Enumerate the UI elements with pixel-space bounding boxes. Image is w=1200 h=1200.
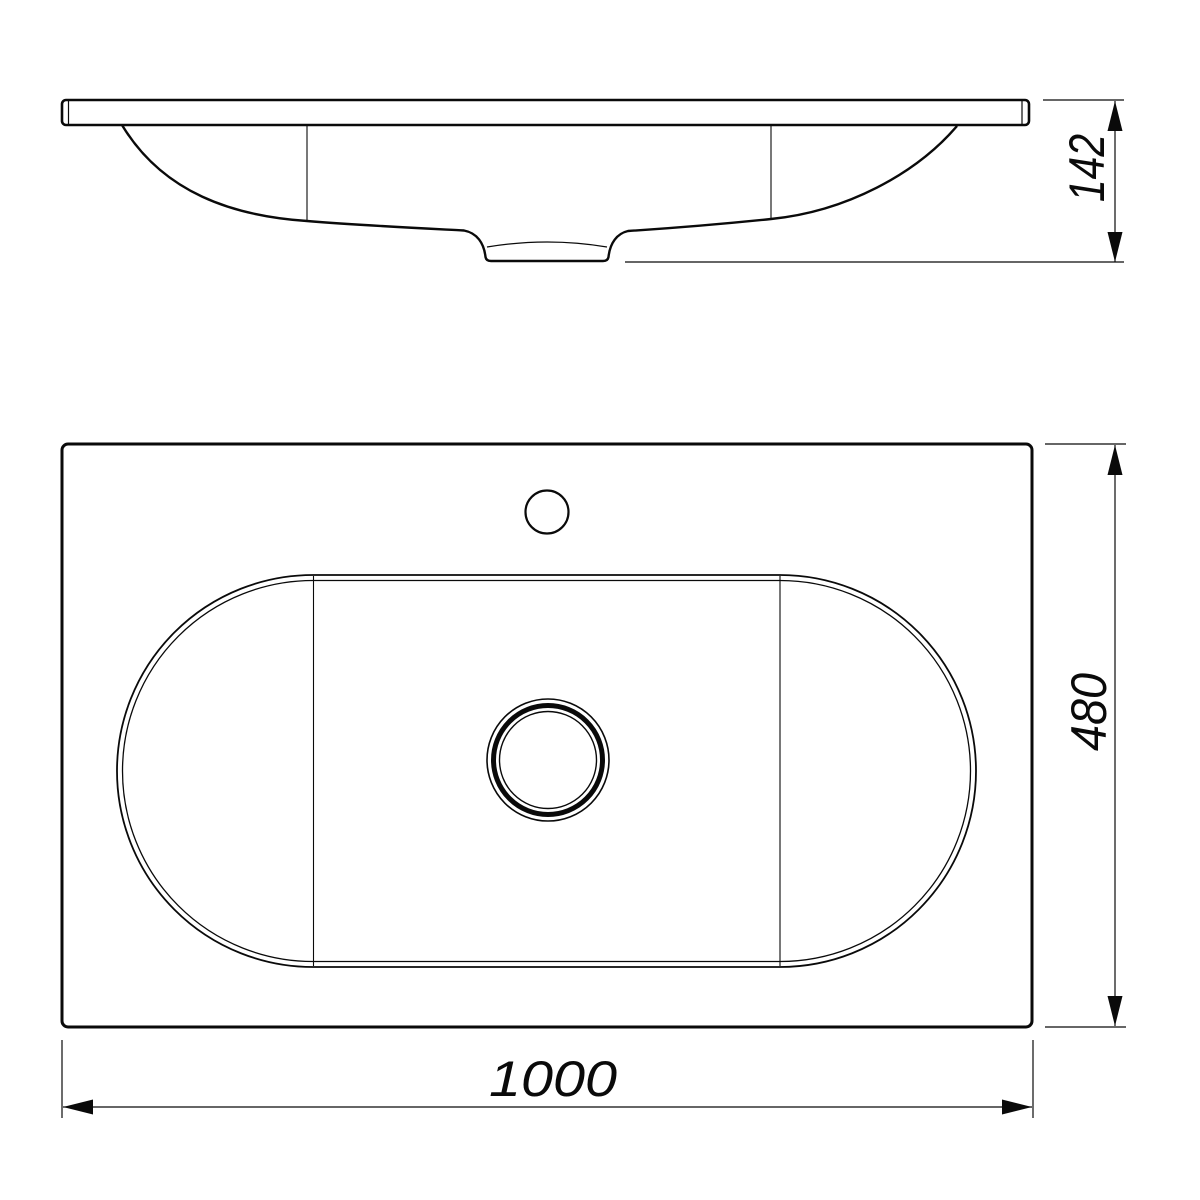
plan-basin-outer-rim [117, 575, 976, 967]
plan-drain-ring [494, 706, 603, 815]
height-dim-arrow-down-icon [1108, 232, 1123, 262]
plan-view [62, 444, 1032, 1027]
depth-dim-arrow-up-icon [1108, 445, 1123, 475]
width-dim-arrow-left-icon [63, 1100, 93, 1115]
height-dim-arrow-up-icon [1108, 101, 1123, 131]
front-drain-recess-arc [487, 242, 607, 247]
front-bowl-profile [122, 125, 957, 261]
height-dim-value: 142 [1059, 134, 1115, 202]
dimension-depth: 480 [1045, 444, 1126, 1027]
width-dim-arrow-right-icon [1002, 1100, 1032, 1115]
plan-drain-inner-circle [500, 712, 597, 809]
dimension-width: 1000 [62, 1040, 1033, 1118]
washbasin-technical-drawing: 142 480 [0, 0, 1200, 1200]
front-slab-outline [62, 100, 1029, 125]
width-dim-value: 1000 [489, 1051, 617, 1107]
plan-basin-inner-rim [123, 581, 971, 962]
front-elevation-view [62, 100, 1029, 261]
plan-faucet-hole [526, 491, 569, 534]
depth-dim-arrow-down-icon [1108, 996, 1123, 1026]
drawing-sheet: 142 480 [0, 0, 1200, 1200]
depth-dim-value: 480 [1061, 673, 1117, 751]
plan-counter-outline [62, 444, 1032, 1027]
plan-drain-outer-circle [487, 699, 609, 821]
